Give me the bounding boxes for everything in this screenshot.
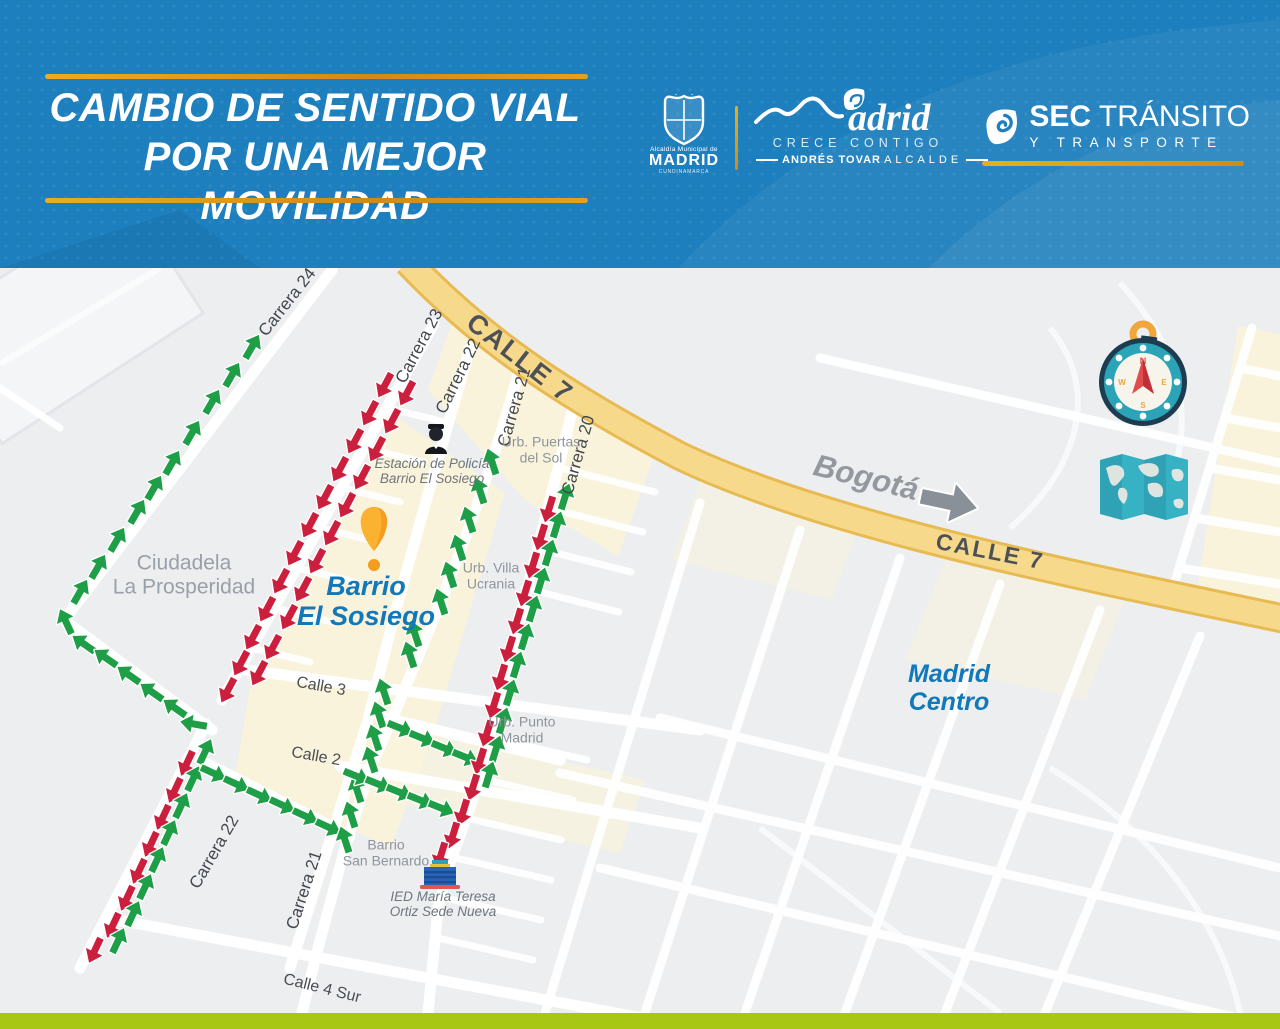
crest-text-line3: CUNDINAMARCA (648, 169, 720, 175)
bogota-direction-arrow-icon (917, 478, 980, 527)
compass-icon: N S W E (1099, 324, 1187, 426)
street-map: N S W E (0, 268, 1280, 1013)
svg-text:S: S (1140, 401, 1146, 410)
crest-shield-icon (661, 94, 707, 146)
page-title-line2: POR UNA MEJOR MOVILIDAD (35, 133, 595, 231)
mayor-name: ANDRÉS TOVAR (782, 154, 881, 166)
madrid-crece-contigo-logo: adrid CRECE CONTIGO ANDRÉS TOVAR ALCALDE (752, 88, 964, 166)
road-change-infographic: CAMBIO DE SENTIDO VIAL POR UNA MEJOR MOV… (0, 0, 1280, 1029)
svg-text:W: W (1118, 378, 1126, 387)
sec-gold-underline (982, 161, 1244, 166)
map-block-topleft (0, 268, 203, 444)
mayor-name-row: ANDRÉS TOVAR ALCALDE (752, 154, 964, 166)
mayor-role: ALCALDE (884, 154, 962, 166)
madrid-crest-logo: Alcaldía Municipal de MADRID CUNDINAMARC… (648, 94, 720, 175)
sec-leaf-icon (982, 98, 1021, 154)
gold-divider-bottom (45, 198, 588, 203)
madrid-script-icon: adrid (752, 88, 962, 134)
madrid-tagline: CRECE CONTIGO (752, 136, 964, 150)
map-streets (0, 270, 1280, 1013)
header-banner: CAMBIO DE SENTIDO VIAL POR UNA MEJOR MOV… (0, 0, 1280, 268)
sec-transito-logo: SEC TRÁNSITO Y TRANSPORTE (982, 98, 1250, 166)
gold-divider-top (45, 74, 588, 79)
logo-divider (735, 106, 738, 170)
page-title-line1: CAMBIO DE SENTIDO VIAL (35, 84, 595, 133)
crest-text-line2: MADRID (648, 153, 720, 169)
world-map-icon (1100, 454, 1188, 520)
madrid-script-text: adrid (848, 97, 931, 134)
svg-text:E: E (1161, 378, 1167, 387)
sec-word-rest: TRÁNSITO (1091, 100, 1250, 133)
bottom-lime-bar (0, 1013, 1280, 1029)
sec-word-bold: SEC (1029, 100, 1091, 133)
sec-line2: Y TRANSPORTE (1029, 135, 1250, 150)
map-canvas: N S W E (0, 268, 1280, 1013)
page-title: CAMBIO DE SENTIDO VIAL POR UNA MEJOR MOV… (35, 84, 595, 230)
